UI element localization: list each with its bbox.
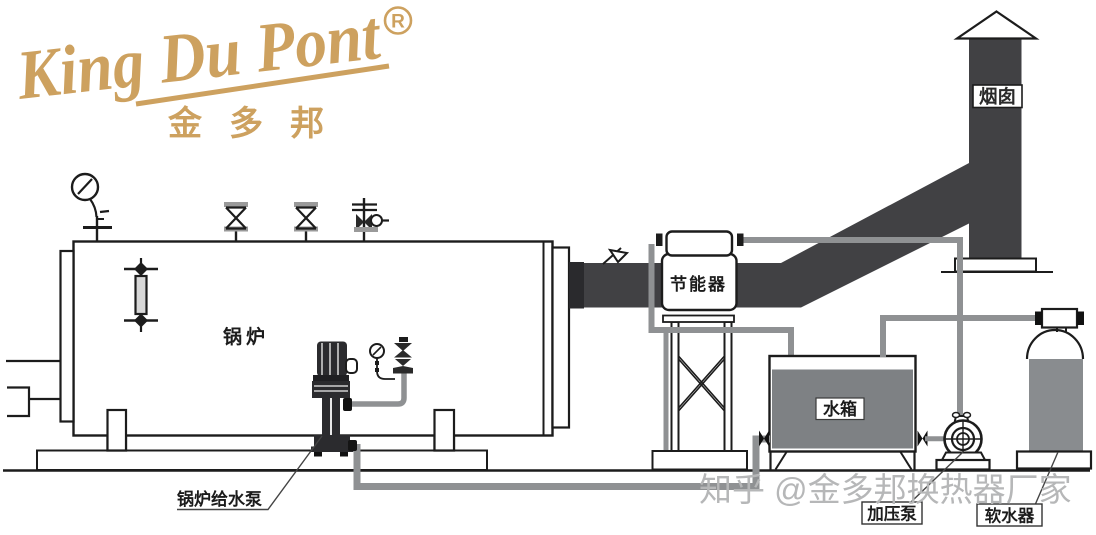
svg-text:金多邦: 金多邦 xyxy=(167,104,351,143)
svg-text:锅炉: 锅炉 xyxy=(223,325,269,348)
svg-text:锅炉给水泵: 锅炉给水泵 xyxy=(177,489,262,509)
svg-text:软水器: 软水器 xyxy=(985,506,1035,526)
svg-text:R: R xyxy=(391,12,405,33)
svg-text:知乎 @金多邦换热器厂家: 知乎 @金多邦换热器厂家 xyxy=(699,471,1072,508)
svg-text:水箱: 水箱 xyxy=(823,399,857,419)
svg-text:King Du Pont: King Du Pont xyxy=(12,0,386,115)
svg-text:烟囱: 烟囱 xyxy=(979,86,1016,107)
svg-text:节能器: 节能器 xyxy=(670,274,727,294)
